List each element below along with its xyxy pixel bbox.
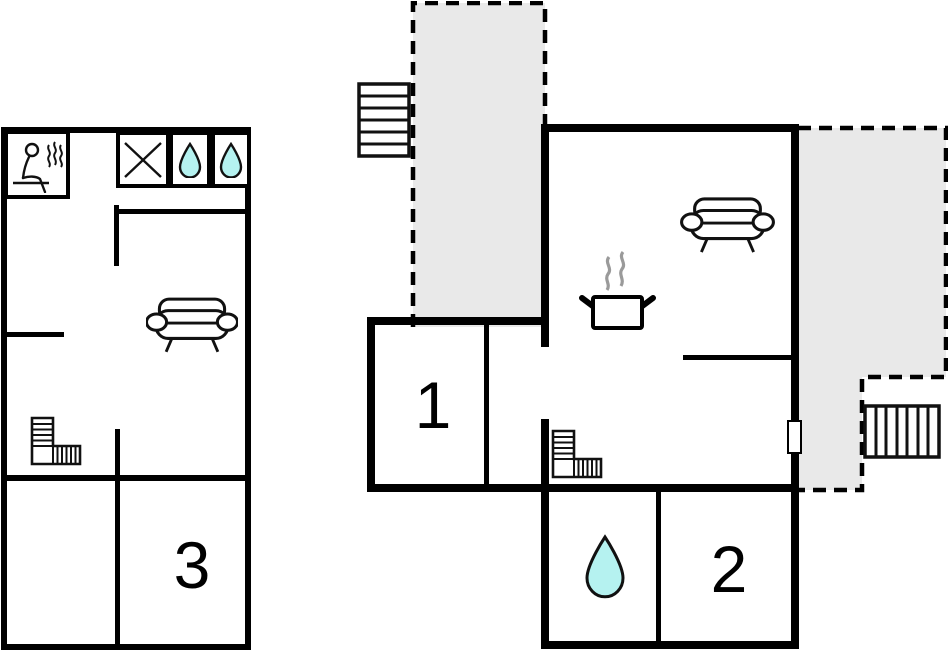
wall-segment: [541, 124, 799, 132]
terrace-right-area: [794, 124, 948, 494]
sink-unit: [169, 131, 211, 188]
terrace-layer: [0, 0, 948, 652]
exterior-stairs-icon: [357, 82, 411, 158]
shower-icon: [121, 137, 165, 183]
wall-segment: [114, 209, 251, 214]
wall-segment: [484, 321, 489, 486]
wall-segment: [1, 475, 251, 481]
wall-segment: [115, 429, 120, 649]
room-1-label: 1: [398, 374, 468, 436]
terrace-top-area: [409, 1, 549, 327]
floor-plan-canvas: 3: [0, 0, 948, 652]
sofa-icon: [679, 196, 776, 254]
door-marker: [787, 420, 802, 454]
water-drop-icon: [177, 142, 203, 178]
water-drop-icon: [218, 142, 244, 178]
sauna-icon: [11, 137, 63, 193]
wall-segment: [541, 124, 549, 347]
cooking-pot-icon: [576, 247, 658, 331]
steam-icon: [607, 257, 610, 290]
stairs-icon: [551, 429, 603, 479]
wall-segment: [541, 484, 799, 492]
room-2-label: 2: [694, 538, 764, 600]
left-building-outer-wall: [1, 127, 251, 650]
left-building: 3: [0, 0, 948, 652]
water-drop-icon: [582, 534, 628, 600]
wall-segment: [367, 484, 549, 492]
room-3-label: 3: [157, 534, 227, 596]
sink-unit: [211, 131, 251, 188]
right-building: [0, 0, 948, 652]
wall-segment: [683, 355, 799, 360]
wall-segment: [114, 205, 119, 266]
wall-segment: [367, 317, 375, 492]
wall-segment: [656, 492, 661, 643]
right-building-contents: 1 2: [0, 0, 948, 652]
stairs-icon: [30, 416, 82, 466]
shower-unit: [116, 131, 170, 188]
sofa-icon: [146, 296, 238, 354]
exterior-stairs-icon: [863, 404, 941, 459]
sauna-cabin: [4, 130, 70, 199]
wall-segment: [791, 124, 799, 649]
wall-segment: [1, 332, 64, 337]
wall-segment: [367, 317, 549, 325]
wall-segment: [541, 419, 549, 649]
wall-segment: [541, 641, 799, 649]
steam-icon: [621, 252, 624, 286]
